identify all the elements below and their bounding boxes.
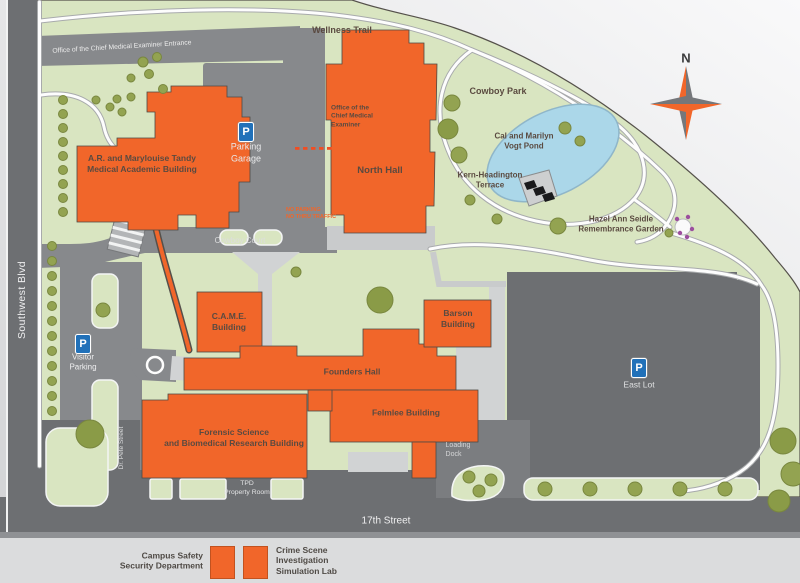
parking-icon-east-lot: P bbox=[631, 358, 647, 378]
tree-icon bbox=[153, 53, 162, 62]
tree-icon bbox=[673, 482, 687, 496]
street-left-sidewalk bbox=[6, 0, 8, 532]
tree-icon bbox=[538, 482, 552, 496]
tpd-pad bbox=[180, 479, 226, 499]
tree-icon bbox=[575, 136, 585, 146]
building-forensic bbox=[142, 394, 307, 478]
building-north-hall bbox=[326, 30, 437, 233]
tree-icon bbox=[59, 166, 68, 175]
building-felmlee-annex bbox=[412, 442, 436, 478]
building-barson bbox=[424, 300, 491, 347]
legend-label-crime-scene: Crime Scene Investigation Simulation Lab bbox=[276, 545, 337, 577]
legend-swatch-campus-safety bbox=[210, 546, 235, 579]
building-connector bbox=[308, 390, 332, 411]
tree-icon bbox=[583, 482, 597, 496]
tree-icon bbox=[92, 96, 100, 104]
street-17th bbox=[0, 497, 800, 532]
tree-icon bbox=[59, 138, 68, 147]
tree-icon bbox=[59, 180, 68, 189]
legend-swatch-crime-scene bbox=[243, 546, 268, 579]
parking-icon-garage: P bbox=[238, 122, 254, 142]
roundabout-ring bbox=[147, 357, 163, 373]
campus-map-canvas bbox=[0, 0, 800, 583]
tpd-pad bbox=[271, 479, 303, 499]
tree-icon bbox=[48, 407, 57, 416]
tree-icon bbox=[48, 332, 57, 341]
tree-icon bbox=[768, 490, 790, 512]
tree-icon bbox=[781, 462, 800, 486]
tree-icon bbox=[76, 420, 104, 448]
tree-icon bbox=[48, 392, 57, 401]
tree-icon bbox=[48, 317, 57, 326]
tree-icon bbox=[465, 195, 475, 205]
tree-icon bbox=[48, 302, 57, 311]
tree-icon bbox=[59, 152, 68, 161]
map-legend: Campus Safety Security Department Crime … bbox=[0, 538, 800, 583]
tree-icon bbox=[485, 474, 497, 486]
street-southwest-blvd bbox=[8, 0, 37, 490]
tree-icon bbox=[48, 242, 57, 251]
tree-icon bbox=[473, 485, 485, 497]
tree-icon bbox=[118, 108, 126, 116]
tree-icon bbox=[59, 194, 68, 203]
tpd-pad bbox=[150, 479, 172, 499]
tree-icon bbox=[59, 96, 68, 105]
tree-icon bbox=[48, 272, 57, 281]
tree-icon bbox=[444, 95, 460, 111]
building-felmlee bbox=[330, 390, 478, 442]
tree-icon bbox=[559, 122, 571, 134]
tree-icon bbox=[48, 347, 57, 356]
visitor-island-north bbox=[92, 274, 118, 328]
tree-icon bbox=[145, 70, 154, 79]
tree-icon bbox=[138, 57, 148, 67]
tree-icon bbox=[438, 119, 458, 139]
tree-icon bbox=[451, 147, 467, 163]
east-lot-surface bbox=[507, 272, 760, 490]
tree-icon bbox=[48, 377, 57, 386]
tree-icon bbox=[367, 287, 393, 313]
tree-icon bbox=[159, 85, 168, 94]
felmlee-south-pad bbox=[348, 452, 408, 472]
tree-icon bbox=[628, 482, 642, 496]
tree-icon bbox=[127, 74, 135, 82]
tree-icon bbox=[127, 93, 135, 101]
campus-map: Southwest Blvd Office of the Chief Medic… bbox=[0, 0, 800, 583]
parking-icon-visitor: P bbox=[75, 334, 91, 354]
tree-icon bbox=[550, 218, 566, 234]
tree-icon bbox=[113, 95, 121, 103]
tree-icon bbox=[59, 124, 68, 133]
tree-icon bbox=[718, 482, 732, 496]
tree-icon bbox=[48, 257, 57, 266]
tree-icon bbox=[59, 208, 68, 217]
legend-label-campus-safety: Campus Safety Security Department bbox=[120, 550, 203, 571]
tree-icon bbox=[48, 362, 57, 371]
tree-icon bbox=[463, 471, 475, 483]
tree-icon bbox=[770, 428, 796, 454]
parking-bay bbox=[254, 230, 282, 245]
road-service-column bbox=[283, 28, 325, 236]
tree-icon bbox=[48, 287, 57, 296]
tree-icon bbox=[291, 267, 301, 277]
tree-icon bbox=[106, 103, 114, 111]
tree-icon bbox=[96, 303, 110, 317]
parking-bay bbox=[220, 230, 248, 245]
tree-icon bbox=[492, 214, 502, 224]
building-came bbox=[197, 292, 262, 352]
tree-icon bbox=[59, 110, 68, 119]
